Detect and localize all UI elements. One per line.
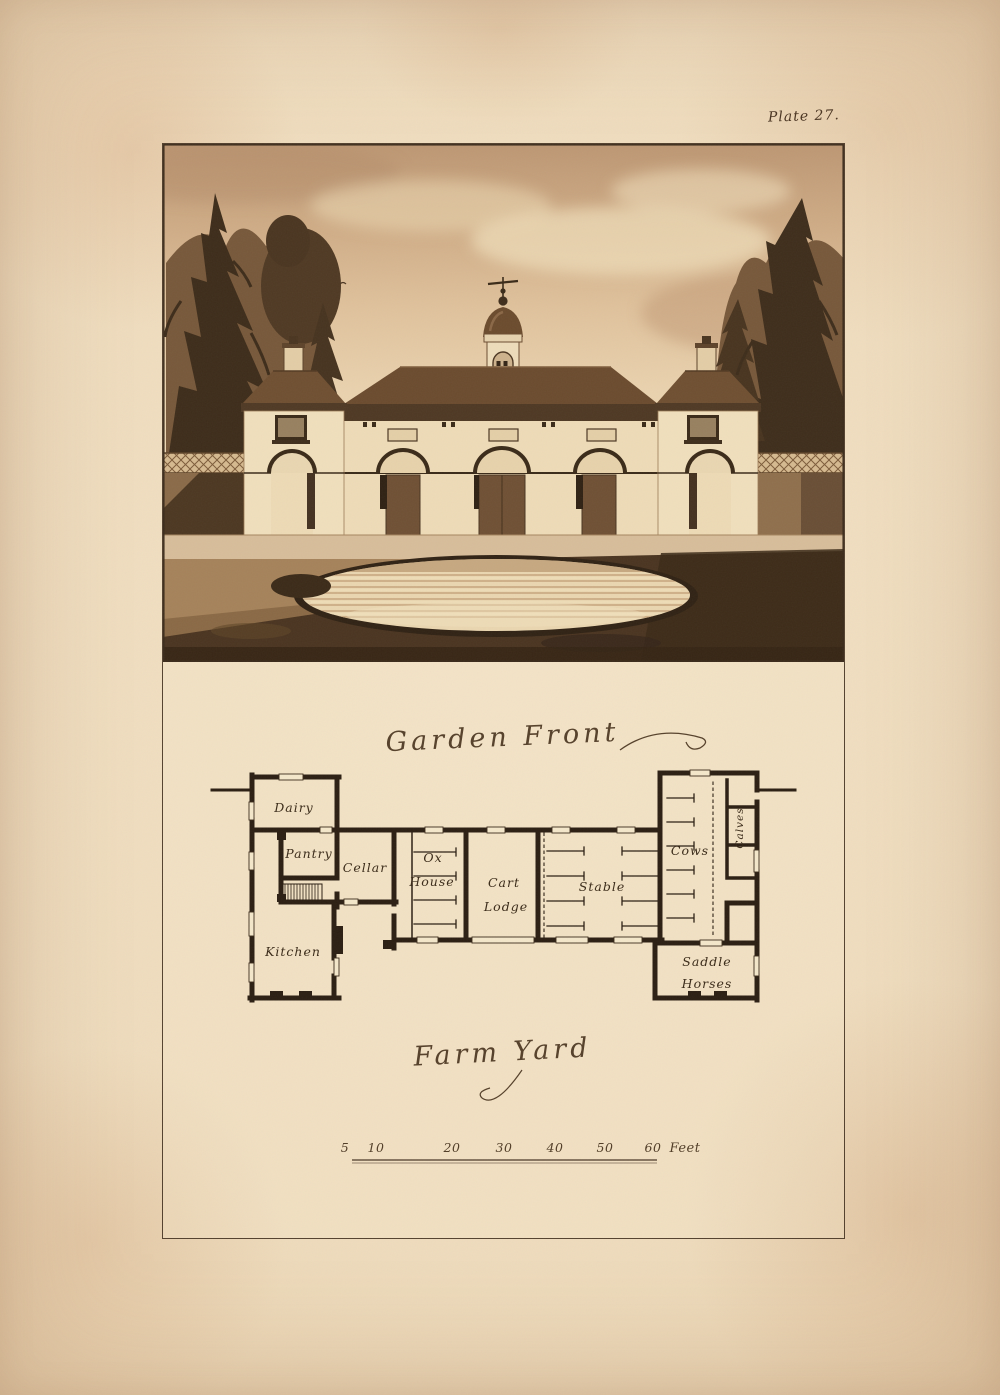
room-label-dairy: Dairy (273, 800, 314, 815)
room-label-cart-lodge-line2: Lodge (483, 899, 528, 914)
room-label-cart-lodge-line1: Cart (488, 875, 520, 890)
room-label-saddle-horses-line1: Saddle (682, 954, 731, 969)
room-label-ox-house-line2: House (408, 874, 454, 889)
foreground (163, 535, 844, 662)
scale-tick-5: 5 (341, 1140, 349, 1155)
room-label-kitchen: Kitchen (264, 944, 321, 959)
scale-tick-20: 20 (443, 1140, 461, 1155)
scale-unit-label: Feet (669, 1141, 701, 1156)
chimney-pot-icon (289, 336, 298, 344)
room-label-cows: Cows (671, 843, 709, 858)
central-eaves (344, 404, 658, 421)
scale-tick-10: 10 (368, 1140, 385, 1155)
room-label-calves: Calves (734, 807, 746, 848)
stall-dividers (414, 794, 694, 930)
scale-tick-40: 40 (546, 1140, 564, 1155)
dashed-passage-lines (544, 782, 713, 938)
plate-number: Plate 27. (162, 107, 840, 147)
room-label-ox-house-line1: Ox (423, 850, 442, 865)
aquatint-elevation-scene (163, 144, 844, 662)
engraved-plate-page: Plate 27. (0, 0, 1000, 1395)
room-label-pantry: Pantry (284, 846, 332, 861)
room-label-saddle-horses-line2: Horses (681, 976, 733, 991)
farm-yard-floor-plan: Dairy Pantry Cellar Kitchen Ox House Car… (165, 755, 842, 1020)
staircase (282, 884, 322, 902)
scale-tick-60: 60 (645, 1140, 662, 1155)
scale-bar: 5 10 20 30 40 50 60 Feet (330, 1125, 710, 1175)
room-label-cellar: Cellar (343, 860, 387, 875)
room-label-stable: Stable (579, 879, 625, 894)
scale-tick-30: 30 (496, 1140, 513, 1155)
left-wing-walls (250, 775, 396, 1000)
scale-tick-50: 50 (597, 1140, 614, 1155)
chimney-pot-icon (702, 336, 711, 344)
central-arches (376, 446, 627, 535)
